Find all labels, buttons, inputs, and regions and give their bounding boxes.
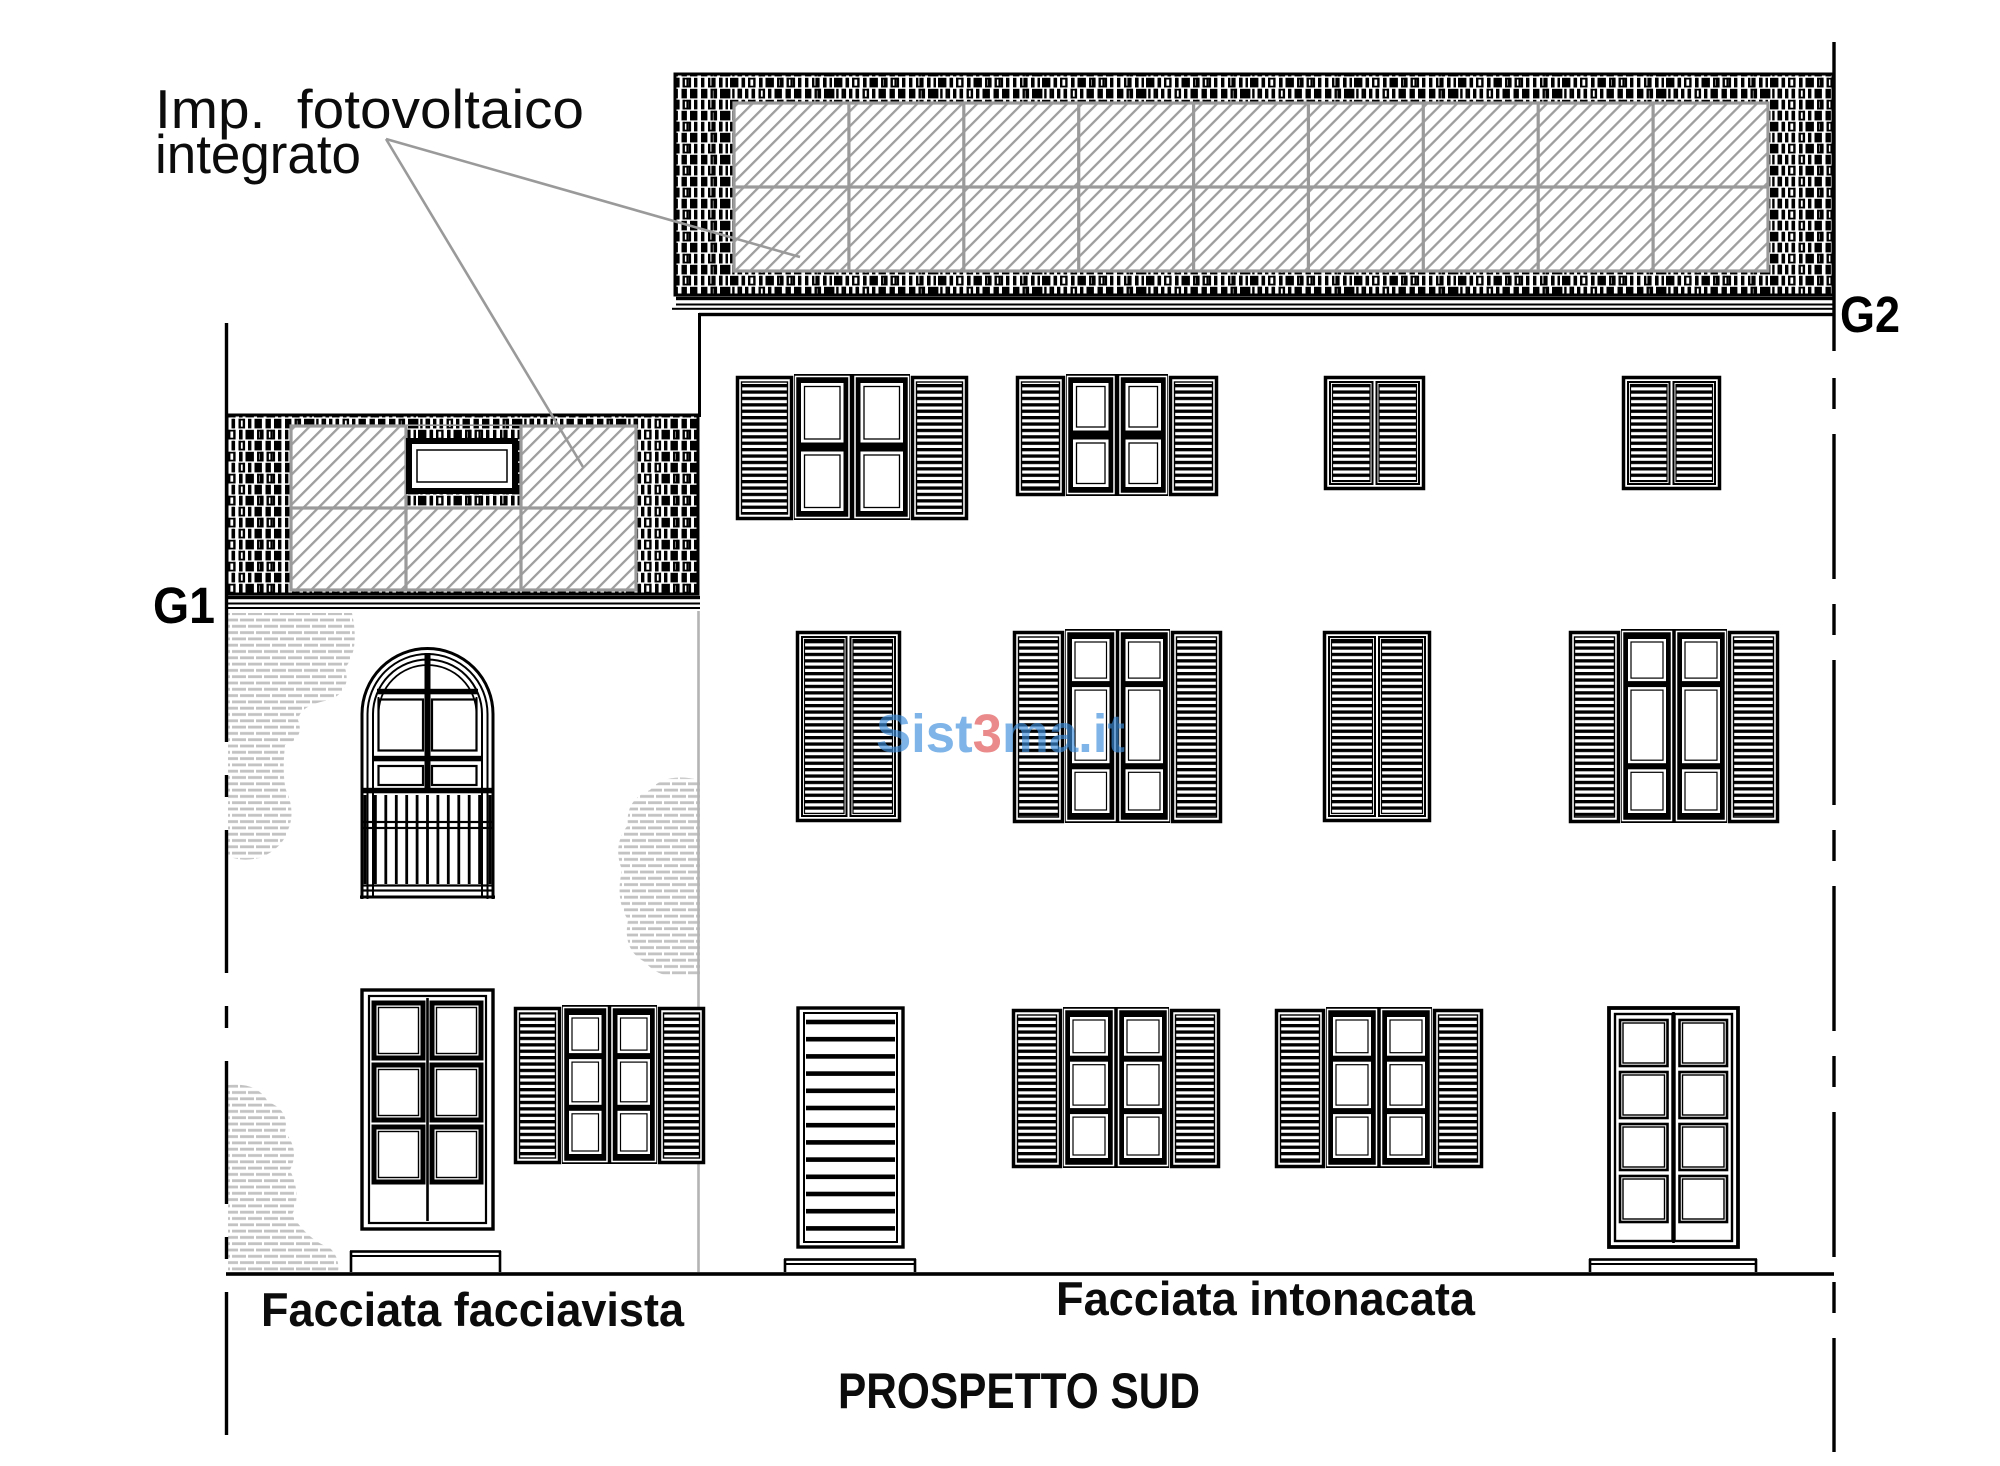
svg-text:G2: G2 — [1840, 286, 1900, 343]
svg-text:Facciata facciavista: Facciata facciavista — [261, 1283, 685, 1336]
svg-text:PROSPETTO SUD: PROSPETTO SUD — [838, 1363, 1200, 1419]
svg-text:Facciata intonacata: Facciata intonacata — [1056, 1272, 1476, 1325]
svg-text:Sist3ma.it: Sist3ma.it — [876, 704, 1125, 764]
svg-text:G1: G1 — [153, 577, 215, 634]
svg-text:integrato: integrato — [155, 123, 361, 185]
